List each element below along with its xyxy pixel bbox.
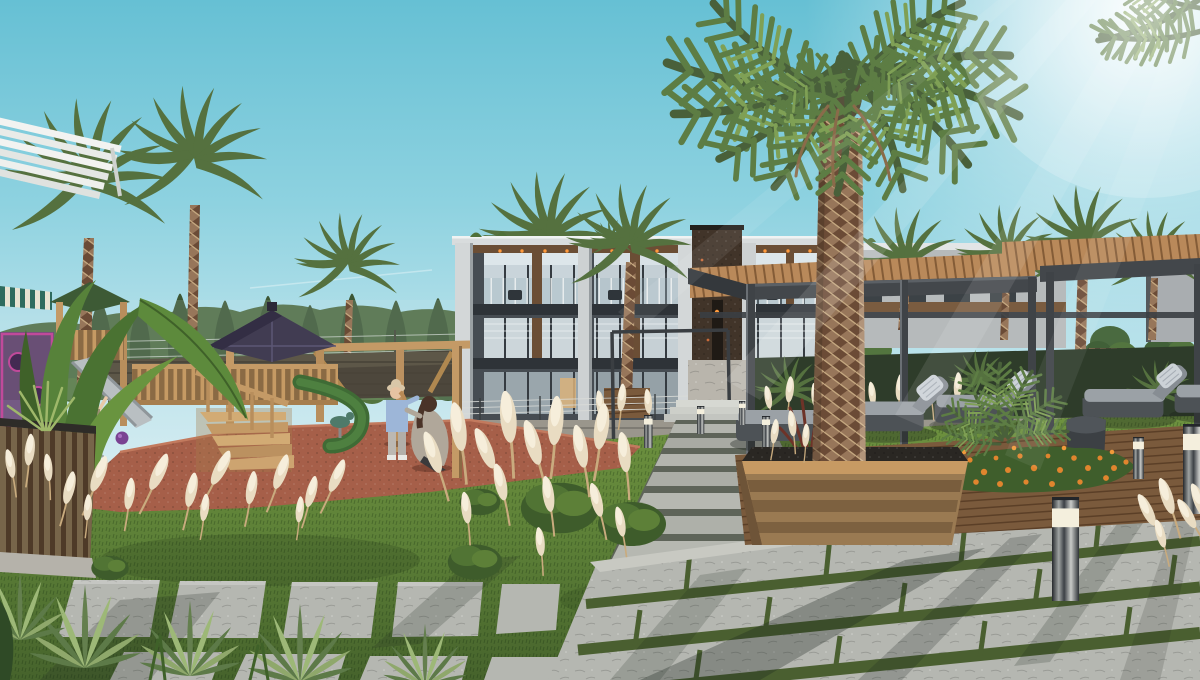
- lit-window: [560, 378, 576, 408]
- path-bollard: [739, 401, 745, 425]
- garden-bollard: [1133, 437, 1144, 479]
- courtyard-render: Sunlit courtyard of a modern low-rise re…: [0, 0, 1200, 680]
- planter-front: [736, 461, 968, 545]
- path-bollard: [697, 406, 704, 434]
- pergola-back-beam: [700, 312, 1200, 318]
- path-bollard: [762, 416, 770, 447]
- gazebo-finial: [267, 302, 277, 311]
- purple-ball: [116, 432, 129, 445]
- path-bollard: [644, 415, 653, 448]
- foreground-bollard: [1052, 497, 1079, 601]
